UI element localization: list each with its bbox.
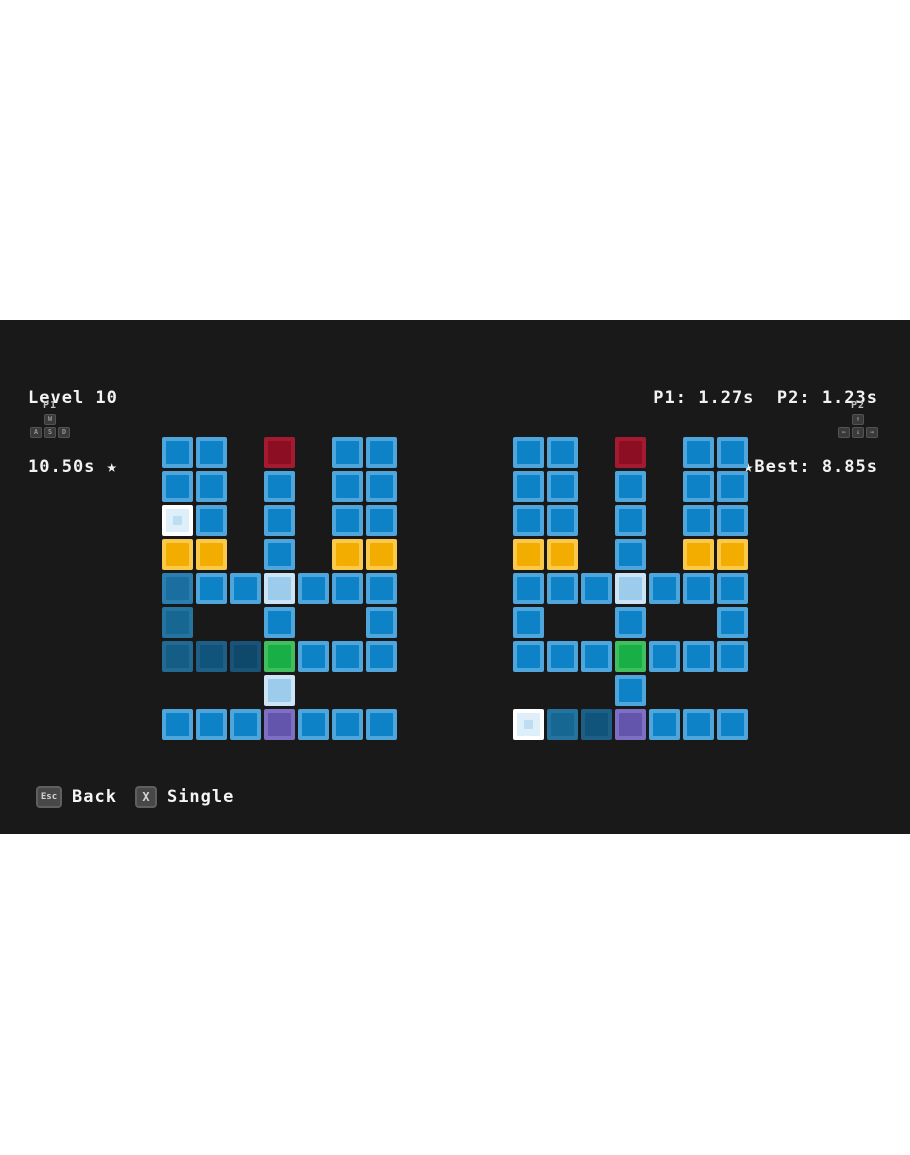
tile-fill — [721, 543, 744, 566]
tile-trail-5 — [230, 641, 261, 672]
tile-blue — [366, 437, 397, 468]
tile-blue — [230, 573, 261, 604]
tile-fill — [619, 611, 642, 634]
tile-blue — [366, 505, 397, 536]
tile-fill — [551, 543, 574, 566]
tile-fill — [336, 577, 359, 600]
tile-fill — [370, 611, 393, 634]
tile-blue — [332, 437, 363, 468]
tile-blue — [615, 675, 646, 706]
tile-blue — [513, 573, 544, 604]
grid-left — [162, 437, 397, 740]
tile-blue — [298, 573, 329, 604]
tile-fill — [721, 611, 744, 634]
tile-blue — [683, 573, 714, 604]
tile-fill — [517, 441, 540, 464]
tile-fill — [268, 645, 291, 668]
tile-fill — [166, 441, 189, 464]
tile-fill — [200, 441, 223, 464]
tile-fill — [687, 441, 710, 464]
tile-fill — [551, 441, 574, 464]
tile-fill — [370, 509, 393, 532]
tile-fill — [653, 577, 676, 600]
tile-fill — [517, 543, 540, 566]
tile-blue — [615, 539, 646, 570]
game-screen: Level 10 10.50s ★ P1: 1.27s P2: 1.23s ★B… — [0, 320, 910, 834]
tile-fill — [517, 645, 540, 668]
x-key-badge[interactable]: X — [135, 786, 157, 808]
tile-fill — [619, 441, 642, 464]
tile-fill — [370, 577, 393, 600]
tile-fill — [687, 577, 710, 600]
tile-fill — [302, 713, 325, 736]
tile-blue — [366, 709, 397, 740]
tile-fill — [517, 475, 540, 498]
tile-yellow — [547, 539, 578, 570]
tile-blue — [649, 641, 680, 672]
tile-ice — [264, 573, 295, 604]
p2-label: P2 — [837, 400, 879, 411]
tile-fill — [166, 611, 189, 634]
tile-blue — [332, 709, 363, 740]
tile-trail-2 — [162, 607, 193, 638]
tile-fill — [619, 543, 642, 566]
p2-controls: P2 ↑ ← ↓ → — [837, 400, 879, 438]
tile-blue — [196, 573, 227, 604]
tile-fill — [268, 441, 291, 464]
tile-blue — [332, 573, 363, 604]
tile-fill — [551, 713, 574, 736]
tile-trail-2 — [547, 709, 578, 740]
key-d-icon: D — [58, 427, 70, 438]
tile-ice — [615, 573, 646, 604]
tile-blue — [366, 641, 397, 672]
tile-fill — [268, 543, 291, 566]
tile-blue — [717, 641, 748, 672]
tile-fill — [687, 475, 710, 498]
tile-fill — [370, 543, 393, 566]
tile-red — [615, 437, 646, 468]
tile-fill — [336, 509, 359, 532]
tile-player-p2 — [513, 709, 544, 740]
tile-fill — [166, 475, 189, 498]
tile-blue — [162, 471, 193, 502]
tile-fill — [721, 645, 744, 668]
tile-blue — [513, 471, 544, 502]
tile-fill — [200, 475, 223, 498]
tile-blue — [196, 437, 227, 468]
key-s-icon: S — [44, 427, 56, 438]
tile-fill — [200, 713, 223, 736]
back-hint[interactable]: Esc Back — [36, 786, 117, 808]
tile-purple — [264, 709, 295, 740]
tile-trail-4 — [581, 709, 612, 740]
tile-fill — [687, 509, 710, 532]
tile-blue — [366, 573, 397, 604]
tile-fill — [336, 713, 359, 736]
tile-fill — [687, 645, 710, 668]
tile-fill — [166, 713, 189, 736]
tile-fill — [721, 713, 744, 736]
tile-fill — [166, 577, 189, 600]
player-marker-icon — [524, 720, 533, 729]
single-hint[interactable]: X Single — [135, 786, 234, 808]
tile-fill — [551, 645, 574, 668]
tile-blue — [683, 709, 714, 740]
p1-controls: P1 W A S D — [29, 400, 71, 438]
single-label: Single — [167, 787, 234, 807]
tile-fill — [268, 679, 291, 702]
tile-red — [264, 437, 295, 468]
key-a-icon: A — [30, 427, 42, 438]
tile-fill — [268, 713, 291, 736]
tile-fill — [721, 577, 744, 600]
tile-blue — [264, 505, 295, 536]
tile-fill — [336, 441, 359, 464]
tile-blue — [581, 641, 612, 672]
tile-yellow — [717, 539, 748, 570]
tile-fill — [517, 509, 540, 532]
tile-fill — [234, 645, 257, 668]
key-arrow-right-icon: → — [866, 427, 878, 438]
tile-blue — [717, 607, 748, 638]
tile-fill — [200, 645, 223, 668]
tile-blue — [717, 505, 748, 536]
tile-trail-3 — [162, 641, 193, 672]
tile-blue — [581, 573, 612, 604]
grid-right — [513, 437, 748, 740]
tile-green — [264, 641, 295, 672]
tile-blue — [366, 607, 397, 638]
tile-blue — [649, 573, 680, 604]
tile-blue — [547, 641, 578, 672]
tile-fill — [370, 645, 393, 668]
tile-yellow — [366, 539, 397, 570]
tile-blue — [332, 505, 363, 536]
tile-blue — [547, 505, 578, 536]
tile-fill — [336, 543, 359, 566]
tile-fill — [200, 509, 223, 532]
tile-fill — [721, 509, 744, 532]
tile-fill — [619, 645, 642, 668]
tile-blue — [513, 437, 544, 468]
tile-fill — [687, 543, 710, 566]
tile-fill — [687, 713, 710, 736]
tile-blue — [513, 641, 544, 672]
tile-fill — [653, 645, 676, 668]
tile-fill — [619, 679, 642, 702]
tile-blue — [264, 607, 295, 638]
tile-fill — [302, 577, 325, 600]
tile-fill — [653, 713, 676, 736]
tile-blue — [683, 505, 714, 536]
key-arrow-down-icon: ↓ — [852, 427, 864, 438]
tile-blue — [513, 607, 544, 638]
tile-blue — [332, 641, 363, 672]
tile-fill — [517, 577, 540, 600]
tile-fill — [517, 611, 540, 634]
key-arrow-left-icon: ← — [838, 427, 850, 438]
tile-blue — [162, 709, 193, 740]
tile-fill — [551, 475, 574, 498]
tile-fill — [336, 475, 359, 498]
tile-fill — [619, 475, 642, 498]
tile-fill — [370, 441, 393, 464]
tile-blue — [683, 437, 714, 468]
tile-purple — [615, 709, 646, 740]
player-marker-icon — [173, 516, 182, 525]
tile-fill — [721, 441, 744, 464]
tile-yellow — [196, 539, 227, 570]
tile-green — [615, 641, 646, 672]
tile-blue — [717, 471, 748, 502]
level-best-time: 10.50s ★ — [28, 456, 118, 479]
tile-fill — [551, 509, 574, 532]
tile-blue — [547, 573, 578, 604]
p1-label: P1 — [29, 400, 71, 411]
tile-fill — [234, 577, 257, 600]
esc-key-badge[interactable]: Esc — [36, 786, 62, 808]
tile-blue — [717, 437, 748, 468]
tile-fill — [721, 475, 744, 498]
tile-blue — [332, 471, 363, 502]
tile-fill — [370, 475, 393, 498]
tile-fill — [585, 645, 608, 668]
tile-blue — [547, 471, 578, 502]
tile-blue — [547, 437, 578, 468]
tile-trail-4 — [196, 641, 227, 672]
tile-blue — [366, 471, 397, 502]
tile-fill — [166, 645, 189, 668]
tile-fill — [268, 509, 291, 532]
tile-fill — [336, 645, 359, 668]
tile-blue — [615, 471, 646, 502]
tile-yellow — [332, 539, 363, 570]
tile-fill — [200, 543, 223, 566]
tile-blue — [683, 641, 714, 672]
tile-ice — [264, 675, 295, 706]
tile-fill — [268, 611, 291, 634]
tile-trail-1 — [162, 573, 193, 604]
footer-hints: Esc Back X Single — [36, 786, 234, 808]
tile-fill — [200, 577, 223, 600]
tile-yellow — [513, 539, 544, 570]
tile-blue — [717, 709, 748, 740]
tile-fill — [619, 577, 642, 600]
tile-fill — [585, 577, 608, 600]
tile-blue — [615, 607, 646, 638]
tile-blue — [513, 505, 544, 536]
tile-fill — [551, 577, 574, 600]
tile-blue — [196, 709, 227, 740]
tile-fill — [268, 577, 291, 600]
tile-fill — [619, 713, 642, 736]
tile-fill — [166, 543, 189, 566]
tile-blue — [196, 505, 227, 536]
tile-blue — [196, 471, 227, 502]
tile-blue — [717, 573, 748, 604]
tile-blue — [264, 471, 295, 502]
tile-blue — [162, 437, 193, 468]
tile-blue — [298, 709, 329, 740]
tile-fill — [370, 713, 393, 736]
tile-fill — [585, 713, 608, 736]
tile-blue — [264, 539, 295, 570]
key-w-icon: W — [44, 414, 56, 425]
tile-fill — [234, 713, 257, 736]
tile-fill — [268, 475, 291, 498]
tile-fill — [302, 645, 325, 668]
tile-yellow — [162, 539, 193, 570]
key-arrow-up-icon: ↑ — [852, 414, 864, 425]
tile-blue — [230, 709, 261, 740]
tile-blue — [615, 505, 646, 536]
tile-player-p1 — [162, 505, 193, 536]
tile-yellow — [683, 539, 714, 570]
tile-fill — [619, 509, 642, 532]
tile-blue — [649, 709, 680, 740]
tile-blue — [683, 471, 714, 502]
back-label: Back — [72, 787, 117, 807]
tile-blue — [298, 641, 329, 672]
